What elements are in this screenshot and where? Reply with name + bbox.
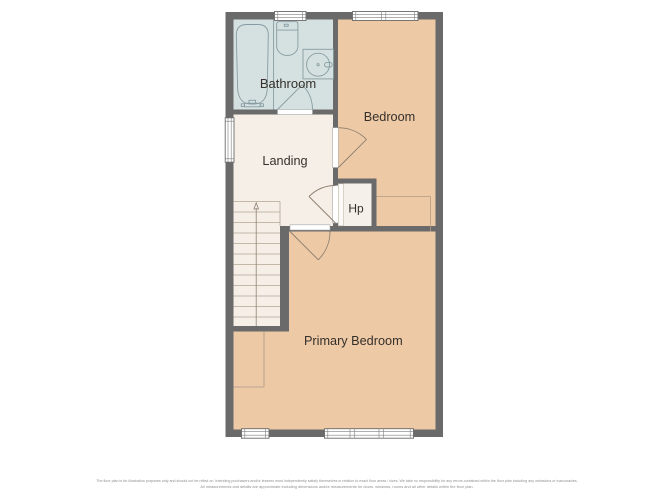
svg-text:Bedroom: Bedroom — [364, 110, 415, 124]
svg-text:Hp: Hp — [348, 201, 364, 215]
svg-text:Bathroom: Bathroom — [260, 76, 316, 91]
svg-text:The floor plan is for illustra: The floor plan is for illustration purpo… — [96, 479, 578, 483]
svg-text:Primary Bedroom: Primary Bedroom — [304, 334, 403, 348]
svg-text:Landing: Landing — [262, 154, 307, 168]
svg-text:All measurements and details a: All measurements and details are approxi… — [200, 484, 473, 489]
